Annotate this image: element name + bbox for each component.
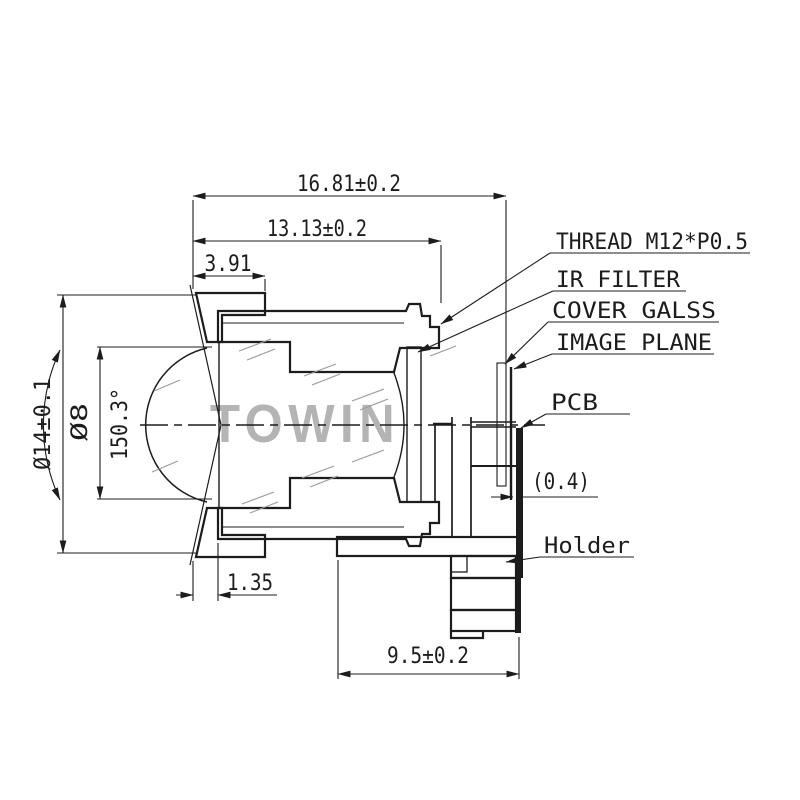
- lens-engineering-drawing: TOWIN: [0, 0, 800, 800]
- front-ring-bottom: [196, 508, 265, 557]
- holder-notch: [451, 556, 467, 572]
- sensor-holder-structure: [433, 417, 516, 537]
- leader-image-plane: [514, 354, 552, 369]
- dim-front-length: 3.91: [205, 252, 252, 277]
- holder-block-upper: [451, 556, 516, 578]
- label-pcb: PCB: [551, 391, 598, 416]
- pcb-bar: [516, 428, 523, 578]
- label-thread: THREAD M12*P0.5: [556, 230, 748, 255]
- dim-outer-diameter: Ø14±0.1: [31, 378, 56, 470]
- label-holder: Holder: [544, 534, 630, 559]
- holder-right-edge: [515, 578, 521, 633]
- dim-glass-gap: (0.4): [532, 470, 590, 495]
- dim-front-step: 1.35: [227, 571, 273, 596]
- front-ring-top: [196, 293, 265, 342]
- label-cover-glass: COVER GALSS: [552, 299, 716, 324]
- leader-ir-filter: [418, 291, 553, 352]
- leader-thread: [441, 253, 550, 324]
- dim-total-length: 16.81±0.2: [297, 172, 401, 197]
- dim-thread-length: 13.13±0.2: [267, 217, 367, 242]
- neck-walls: [452, 417, 471, 537]
- holder: [337, 537, 519, 638]
- part-labels: THREAD M12*P0.5 IR FILTER COVER GALSS IM…: [418, 230, 750, 562]
- dim-front-lens-diameter: Ø8: [68, 403, 93, 441]
- holder-block-lower: [451, 610, 516, 631]
- watermark-text: TOWIN: [210, 394, 400, 454]
- holder-mid: [451, 578, 516, 610]
- dim-fov-angle: 150.3°: [108, 388, 133, 460]
- dim-holder-length: 9.5±0.2: [387, 644, 469, 669]
- label-ir-filter: IR FILTER: [556, 268, 681, 293]
- drawing-canvas: TOWIN: [0, 0, 800, 800]
- leader-pcb: [521, 414, 546, 428]
- label-image-plane: IMAGE PLANE: [556, 331, 712, 356]
